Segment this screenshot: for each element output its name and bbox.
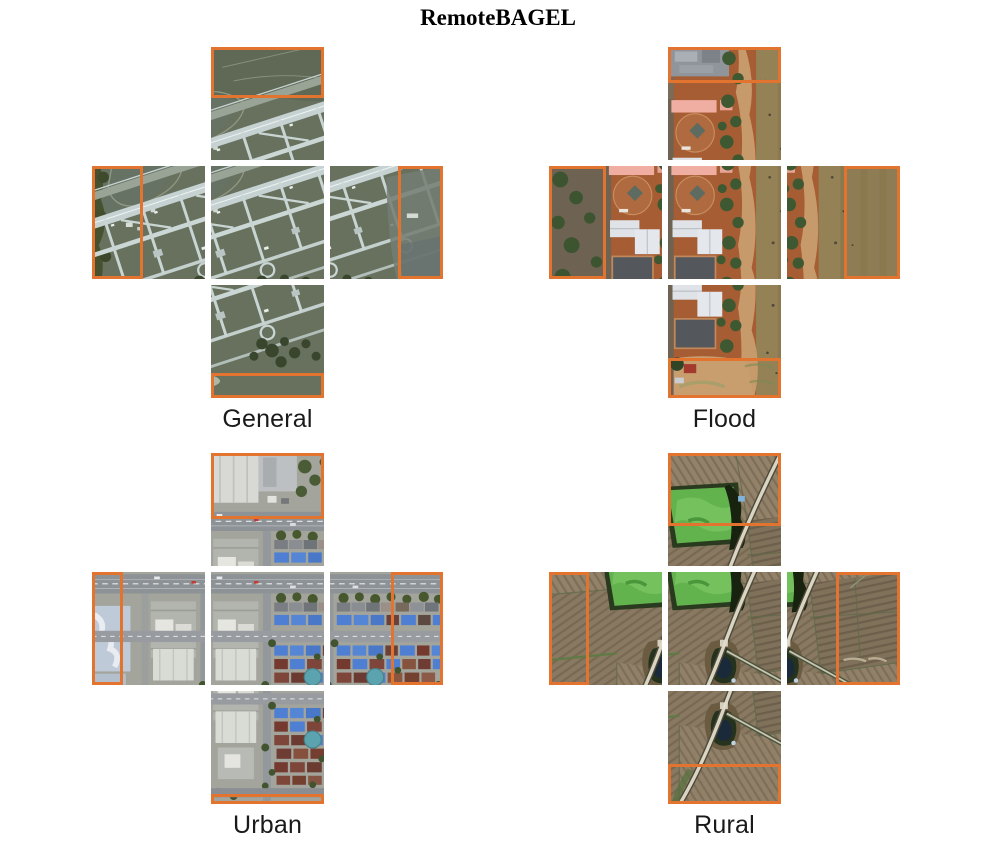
satellite-image-general-center: [211, 166, 324, 279]
satellite-image-urban-left: [92, 572, 205, 685]
satellite-image-general-left: [92, 166, 205, 279]
satellite-image-flood-top: [668, 47, 781, 160]
cross-flood: [549, 47, 900, 398]
satellite-image-general-top: [211, 47, 324, 160]
tile-general-center: [211, 166, 324, 279]
satellite-image-urban-center: [211, 572, 324, 685]
panel-label-flood: Flood: [549, 405, 900, 434]
tile-rural-right: [787, 572, 900, 685]
tile-rural-center: [668, 572, 781, 685]
satellite-image-urban-bottom: [211, 691, 324, 804]
satellite-image-urban-right: [330, 572, 443, 685]
tile-flood-right: [787, 166, 900, 279]
satellite-image-flood-left: [549, 166, 662, 279]
satellite-image-rural-top: [668, 453, 781, 566]
tile-rural-top: [668, 453, 781, 566]
satellite-image-rural-center: [668, 572, 781, 685]
tile-flood-bottom: [668, 285, 781, 398]
panel-label-urban: Urban: [92, 811, 443, 840]
satellite-image-general-right: [330, 166, 443, 279]
tile-urban-top: [211, 453, 324, 566]
tile-general-bottom: [211, 285, 324, 398]
panel-urban: Urban: [92, 453, 443, 840]
panel-flood: Flood: [549, 47, 900, 434]
satellite-image-rural-left: [549, 572, 662, 685]
tile-flood-left: [549, 166, 662, 279]
tile-general-right: [330, 166, 443, 279]
tile-urban-left: [92, 572, 205, 685]
tile-urban-right: [330, 572, 443, 685]
satellite-image-general-bottom: [211, 285, 324, 398]
tile-rural-bottom: [668, 691, 781, 804]
panel-rural: Rural: [549, 453, 900, 840]
cross-urban: [92, 453, 443, 804]
tile-urban-center: [211, 572, 324, 685]
tile-general-top: [211, 47, 324, 160]
tile-rural-left: [549, 572, 662, 685]
panel-label-rural: Rural: [549, 811, 900, 840]
panel-general: General: [92, 47, 443, 434]
satellite-image-rural-right: [787, 572, 900, 685]
satellite-image-urban-top: [211, 453, 324, 566]
tile-urban-bottom: [211, 691, 324, 804]
tile-general-left: [92, 166, 205, 279]
cross-general: [92, 47, 443, 398]
satellite-image-flood-right: [787, 166, 900, 279]
cross-rural: [549, 453, 900, 804]
tile-flood-top: [668, 47, 781, 160]
satellite-image-flood-center: [668, 166, 781, 279]
panel-label-general: General: [92, 405, 443, 434]
satellite-image-rural-bottom: [668, 691, 781, 804]
satellite-image-flood-bottom: [668, 285, 781, 398]
tile-flood-center: [668, 166, 781, 279]
figure-title: RemoteBAGEL: [0, 5, 996, 31]
